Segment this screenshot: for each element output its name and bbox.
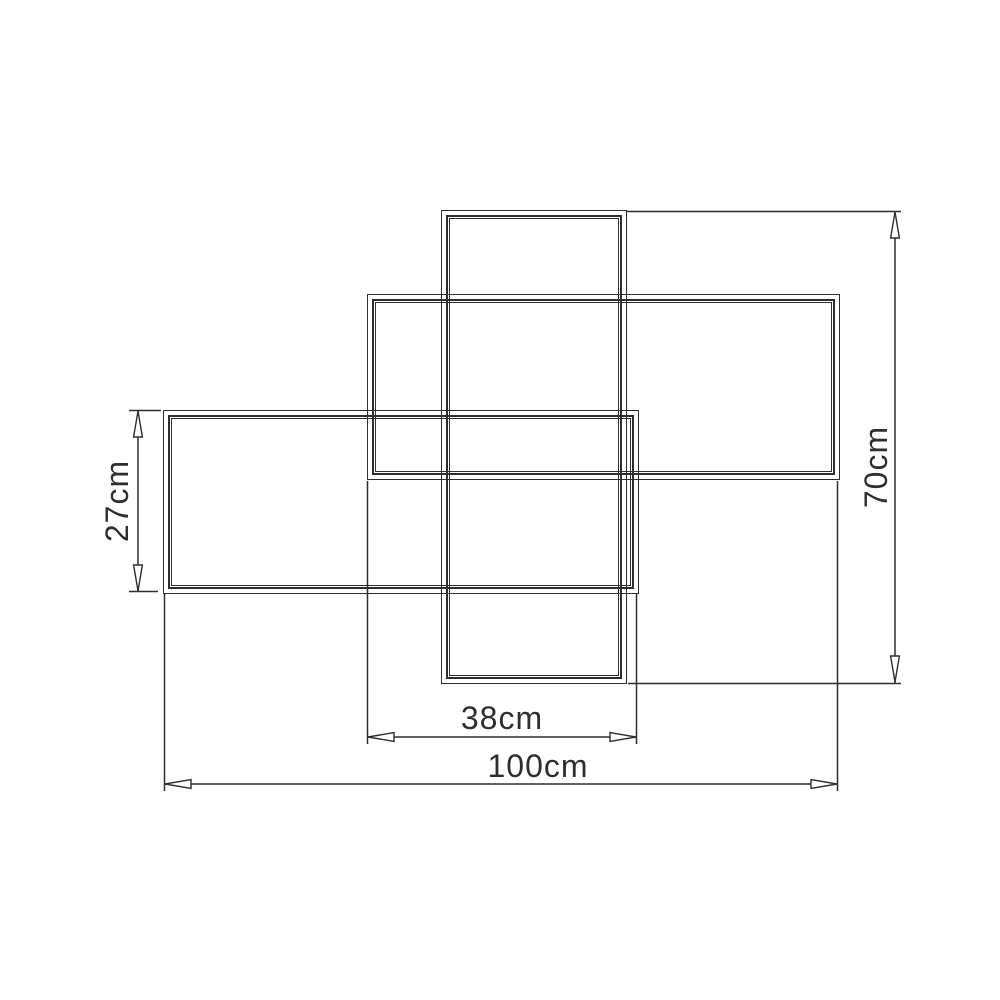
- dim-label-center-width: 38cm: [412, 700, 592, 736]
- dimension-annotations: [0, 0, 1000, 1000]
- dim-label-overall-width: 100cm: [448, 748, 628, 784]
- dimension-drawing: 27cm 70cm 38cm 100cm: [0, 0, 1000, 1000]
- dim-label-right-height: 70cm: [858, 377, 894, 557]
- dim-100-group: [164, 481, 838, 791]
- dim-label-left-height: 27cm: [99, 411, 135, 591]
